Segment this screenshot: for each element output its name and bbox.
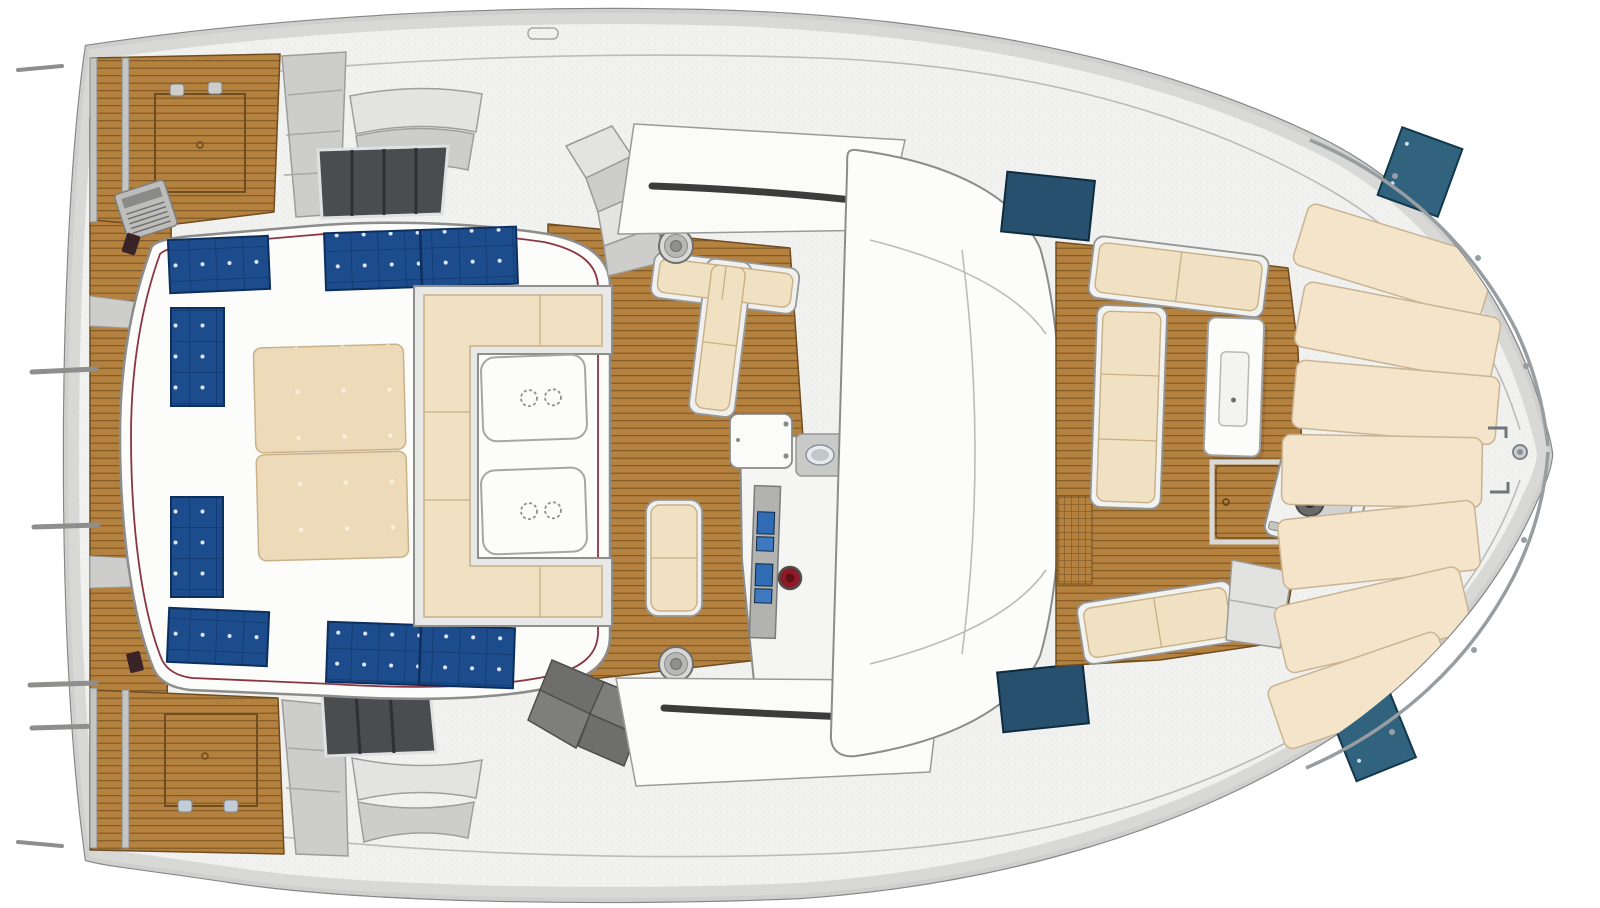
tinted-hatch — [1001, 172, 1095, 241]
tinted-hatch — [997, 664, 1089, 733]
deck-hatch-hinge — [170, 84, 184, 96]
bow-roller-pin — [1517, 449, 1523, 455]
sunpad-section — [1281, 434, 1482, 507]
stair-tread — [350, 88, 482, 134]
cockpit-sofa-side-arm — [1090, 305, 1167, 509]
hatch-hinge-pin — [783, 453, 788, 458]
solar-panel — [167, 608, 269, 666]
deck-plan-svg — [0, 0, 1600, 908]
helm-display — [755, 564, 773, 587]
helm-display — [757, 512, 775, 535]
flybridge-table-lower — [481, 467, 588, 555]
davit-post — [90, 58, 97, 222]
deck-plan-figure — [0, 0, 1600, 908]
deck-hatch-hinge — [178, 800, 192, 812]
locker-handle-recess — [811, 449, 829, 461]
coachroof-main — [831, 150, 1062, 756]
solar-panel — [171, 497, 223, 597]
sunbed-tufting — [253, 344, 409, 561]
boarding-rail — [32, 726, 98, 728]
boarding-rail — [34, 525, 98, 527]
boarding-rail — [32, 369, 96, 372]
cockpit-table — [1203, 317, 1268, 461]
davit-post — [90, 688, 97, 848]
davit-post — [122, 690, 129, 848]
sunbed — [253, 344, 409, 561]
helm-display — [756, 537, 773, 552]
flybridge — [120, 223, 612, 699]
drain-grate — [1058, 496, 1092, 584]
boarding-rail — [30, 683, 96, 685]
flybridge-table-upper — [481, 354, 588, 442]
hatch-latch-pin — [736, 438, 740, 442]
hatch-hinge-pin — [783, 421, 788, 426]
instrument-panel — [749, 486, 780, 639]
helm-bench — [646, 500, 702, 616]
solar-panel — [171, 308, 224, 406]
compass-center — [786, 574, 795, 583]
winch-bottom — [659, 647, 693, 681]
deck-hatch-hinge — [208, 82, 222, 94]
winch-top — [659, 229, 693, 263]
helm-display — [755, 589, 772, 604]
sofa-cushion — [1096, 311, 1161, 503]
solar-panel — [168, 236, 270, 293]
deck-hatch-hinge — [224, 800, 238, 812]
